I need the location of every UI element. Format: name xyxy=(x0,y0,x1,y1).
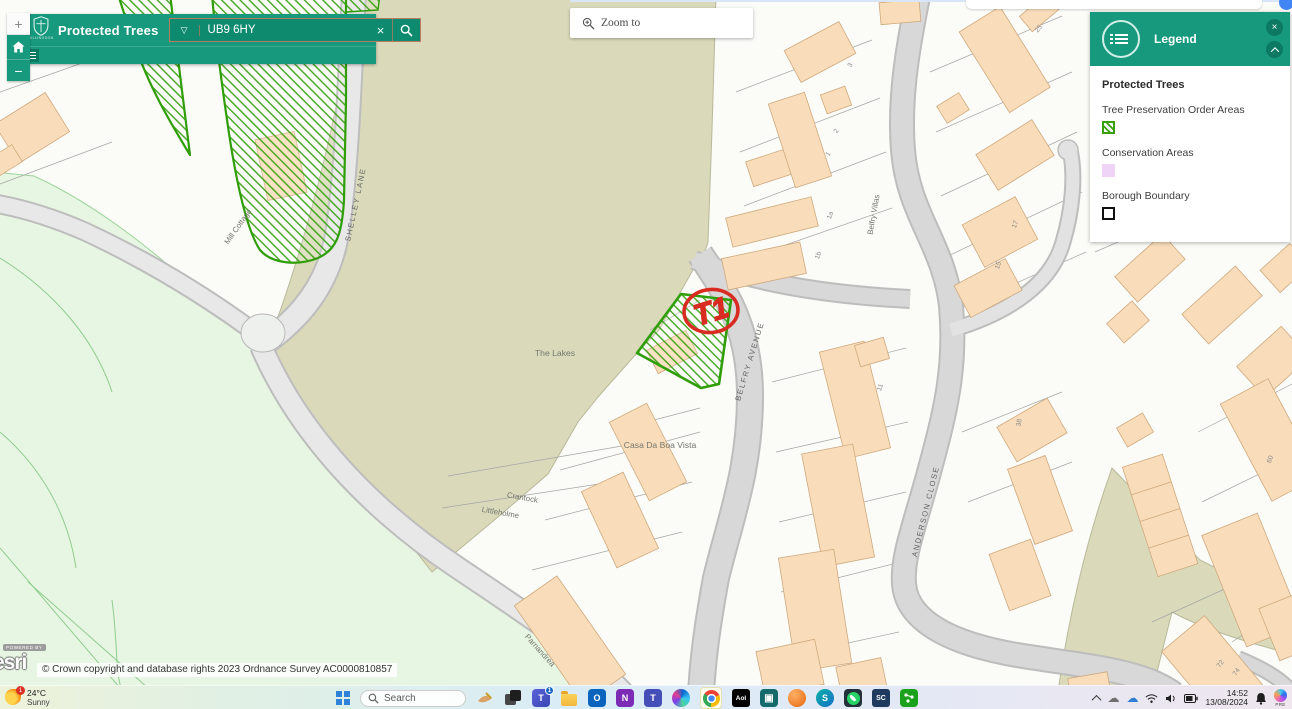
clock-date: 13/08/2024 xyxy=(1205,698,1248,708)
conservation-swatch xyxy=(1102,164,1115,177)
app-chrome-active[interactable] xyxy=(700,687,722,709)
windows-taskbar: 1 24°C Sunny Search xyxy=(0,685,1292,709)
zoom-in-button[interactable]: + xyxy=(7,13,30,35)
start-button[interactable] xyxy=(336,691,350,705)
hidden-icons-chevron[interactable] xyxy=(1092,694,1102,704)
legend-title: Legend xyxy=(1154,32,1197,46)
app-teams-new-icon[interactable]: T 1 xyxy=(532,689,550,707)
search-clear-icon[interactable]: × xyxy=(370,23,392,38)
copilot-button[interactable]: PRE xyxy=(1274,689,1287,707)
esri-brand: esri xyxy=(0,651,26,674)
app-green-grid-icon[interactable] xyxy=(900,689,918,707)
app-orange-sphere-icon[interactable] xyxy=(788,689,806,707)
app-onenote-icon[interactable]: N xyxy=(616,689,634,707)
copyright-attribution: © Crown copyright and database rights 20… xyxy=(37,663,397,677)
battery-icon[interactable] xyxy=(1184,694,1198,703)
map-zoom-controls: + − xyxy=(7,13,30,81)
app-darksquares-icon[interactable] xyxy=(504,689,522,707)
taskbar-clock[interactable]: 14:52 13/08/2024 xyxy=(1205,689,1248,708)
header-sub-row xyxy=(21,46,376,64)
app-window: T1 SHELLEY LANEThe LakesMill CottageBELF… xyxy=(0,0,1292,709)
notification-bell-icon[interactable] xyxy=(1255,692,1267,705)
app-file-explorer-icon[interactable] xyxy=(560,689,578,707)
weather-widget[interactable]: 1 24°C Sunny xyxy=(5,688,50,707)
weather-temp: 24°C xyxy=(27,688,50,698)
app-aol-icon[interactable]: Aol xyxy=(732,689,750,707)
zoom-out-button[interactable]: − xyxy=(7,60,30,81)
legend-header: Legend × xyxy=(1090,12,1290,66)
taskbar-search[interactable]: Search xyxy=(360,690,466,707)
app-edge-icon[interactable] xyxy=(672,689,690,707)
zoom-to-label: Zoom to xyxy=(601,17,640,29)
legend-item-tpo: Tree Preservation Order Areas xyxy=(1102,104,1278,134)
system-tray: ☁ ☁ 14:52 13/08/2024 xyxy=(1093,686,1287,709)
app-whatsapp-icon[interactable] xyxy=(844,689,862,707)
legend-item-conservation: Conservation Areas xyxy=(1102,147,1278,177)
nodes-icon xyxy=(903,692,915,704)
close-icon: × xyxy=(1272,22,1278,33)
chrome-icon xyxy=(703,690,720,707)
search-submit-button[interactable] xyxy=(392,19,420,41)
map-label: The Lakes xyxy=(535,348,575,358)
copilot-icon xyxy=(1274,689,1287,702)
legend-collapse-button[interactable] xyxy=(1266,41,1283,58)
tpo-swatch xyxy=(1102,121,1115,134)
weather-badge: 1 xyxy=(16,686,25,695)
chevron-up-icon xyxy=(1270,47,1278,55)
map-label: Casa Da Boa Vista xyxy=(624,440,697,450)
search-input[interactable] xyxy=(200,24,370,36)
powered-by-label: POWERED BY xyxy=(3,644,46,651)
collapsed-popup-strip xyxy=(966,0,1262,9)
app-sage-icon[interactable]: S xyxy=(816,689,834,707)
app-teams-classic-icon[interactable]: T xyxy=(644,689,662,707)
header-main-row: HILLINGDON Protected Trees ▽ × xyxy=(21,14,376,46)
teams-notification-badge: 1 xyxy=(545,686,554,695)
legend-group-title: Protected Trees xyxy=(1102,79,1278,91)
zoom-to-popup[interactable]: Zoom to xyxy=(570,8,753,38)
home-icon xyxy=(12,41,25,53)
app-annotate-icon[interactable] xyxy=(476,689,494,707)
hand-pen-icon xyxy=(476,689,494,707)
copilot-preview-label: PRE xyxy=(1275,702,1285,707)
weather-icon: 1 xyxy=(5,689,22,706)
map-label: 38 xyxy=(1015,418,1023,427)
council-crest-icon xyxy=(32,16,50,36)
list-icon xyxy=(1115,34,1128,44)
weather-condition: Sunny xyxy=(27,698,50,707)
legend-body: Protected Trees Tree Preservation Order … xyxy=(1090,66,1290,242)
legend-close-button[interactable]: × xyxy=(1266,19,1283,36)
council-logo-text: HILLINGDON xyxy=(28,36,53,40)
home-button[interactable] xyxy=(7,35,30,60)
search-box: ▽ × xyxy=(169,18,421,42)
taskbar-apps: Search T 1 O N T Aol ▣ S xyxy=(336,686,918,709)
app-sc-icon[interactable]: SC xyxy=(872,689,890,707)
taskbar-search-label: Search xyxy=(384,693,416,704)
council-logo: HILLINGDON xyxy=(29,16,53,44)
search-source-dropdown[interactable]: ▽ xyxy=(170,25,200,36)
app-teal-utility-icon[interactable]: ▣ xyxy=(760,689,778,707)
legend-panel: Legend × Protected Trees Tree Preservati… xyxy=(1090,12,1290,242)
app-outlook-icon[interactable]: O xyxy=(588,689,606,707)
boundary-swatch xyxy=(1102,207,1115,220)
onedrive-icon[interactable]: ☁ xyxy=(1126,692,1138,704)
app-title: Protected Trees xyxy=(58,23,159,38)
zoom-in-magnifier-icon xyxy=(582,17,595,30)
wifi-icon[interactable] xyxy=(1145,693,1158,704)
speaker-icon[interactable] xyxy=(1165,693,1177,704)
legend-icon xyxy=(1102,20,1140,58)
whatsapp-icon xyxy=(847,692,860,705)
pond xyxy=(241,314,285,352)
legend-item-boundary: Borough Boundary xyxy=(1102,190,1278,220)
app-header: HILLINGDON Protected Trees ▽ × xyxy=(21,14,376,64)
search-icon xyxy=(368,693,379,704)
cloud-icon[interactable]: ☁ xyxy=(1107,692,1119,704)
search-icon xyxy=(400,24,413,37)
